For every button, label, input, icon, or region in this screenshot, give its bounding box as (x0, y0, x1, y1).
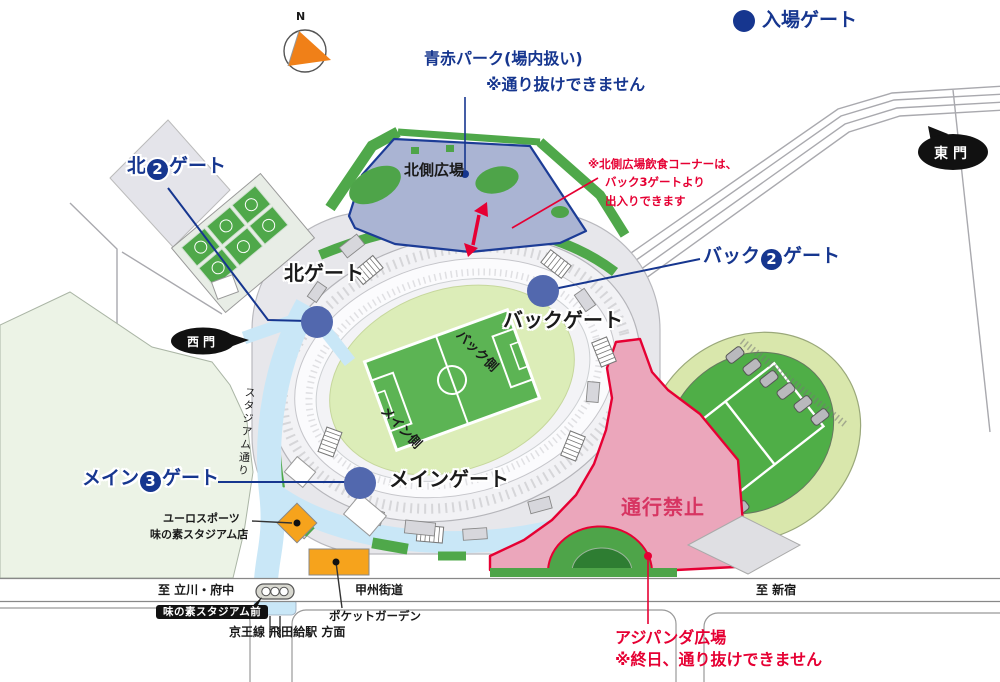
compass-north-label: N (296, 10, 305, 24)
south-city-blocks (0, 608, 1000, 682)
pocket-garden-label: ポケットガーデン (329, 609, 421, 623)
gate-dot-north (301, 306, 333, 338)
euro-sports-line2: 味の素スタジアム店 (150, 527, 248, 543)
gate-kita2-suffix: ゲート (169, 155, 226, 177)
gate-label-kita: 北ゲート (284, 261, 364, 286)
gate-dot-main (344, 467, 376, 499)
gate-kita2-number: 2 (147, 159, 168, 180)
stadium-access-map: 東門 西門 N 入場ゲート 青赤パーク(場内扱い) ※通り抜けできません 北2ゲ… (0, 0, 1000, 682)
to-tachikawa-label: 至 立川・府中 (158, 583, 234, 598)
aoaka-park-label-line2: ※通り抜けできません (486, 75, 645, 95)
gate-main3-suffix: ゲート (162, 467, 219, 489)
euro-sports-label: ユーロスポーツ 味の素スタジアム店 (150, 511, 248, 543)
gate-main3-number: 3 (140, 471, 161, 492)
gate-label-back: バックゲート (503, 308, 623, 333)
north-plaza-label: 北側広場 (404, 161, 464, 180)
gate-label-kita2: 北2ゲート (127, 155, 226, 180)
bus-stop-sign: 味の素スタジアム前 (156, 600, 268, 620)
gate-label-back2: バック2ゲート (703, 245, 840, 270)
euro-sports-line1: ユーロスポーツ (150, 511, 248, 527)
ajipanda-label-line1: アジパンダ広場 (615, 628, 726, 648)
koshu-kaido-road (0, 579, 1000, 602)
crosswalk-icon (256, 584, 294, 599)
food-note-line3: 出入りできます (588, 192, 737, 210)
gate-back2-number: 2 (761, 249, 782, 270)
east-gate-label: 東門 (934, 145, 972, 162)
west-gate-label: 西門 (187, 335, 219, 349)
gate-main3-prefix: メイン (82, 467, 139, 489)
gate-label-main3: メイン3ゲート (82, 467, 219, 492)
legend-entrance-gate: 入場ゲート (762, 9, 857, 33)
west-gate-sign: 西門 (171, 328, 249, 355)
aoaka-park-label-line1: 青赤パーク(場内扱い) (424, 49, 583, 69)
to-shinjuku-label: 至 新宿 (756, 583, 796, 598)
legend-gate-dot (733, 10, 755, 32)
ajipanda-label-line2: ※終日、通り抜けできません (615, 650, 822, 670)
keio-line-label: 京王線 飛田給駅 方面 (229, 625, 345, 640)
gate-back2-prefix: バック (703, 245, 760, 267)
gate-dot-back (527, 275, 559, 307)
gate-kita2-prefix: 北 (127, 155, 146, 177)
south-green-strip (490, 568, 677, 577)
food-note-line2: バック3ゲートより (588, 173, 737, 191)
north-plaza-food-note: ※北側広場飲食コーナーは、 バック3ゲートより 出入りできます (588, 155, 737, 210)
food-note-line1: ※北側広場飲食コーナーは、 (588, 155, 737, 173)
gate-back2-suffix: ゲート (783, 245, 840, 267)
koshu-kaido-label: 甲州街道 (355, 583, 403, 598)
compass-icon (284, 30, 331, 72)
map-shapes-layer: 東門 西門 (0, 0, 1000, 682)
gate-label-main: メインゲート (389, 467, 509, 492)
no-passage-label: 通行禁止 (621, 495, 705, 520)
bus-stop-label: 味の素スタジアム前 (156, 605, 268, 619)
east-gate-sign: 東門 (918, 126, 988, 170)
